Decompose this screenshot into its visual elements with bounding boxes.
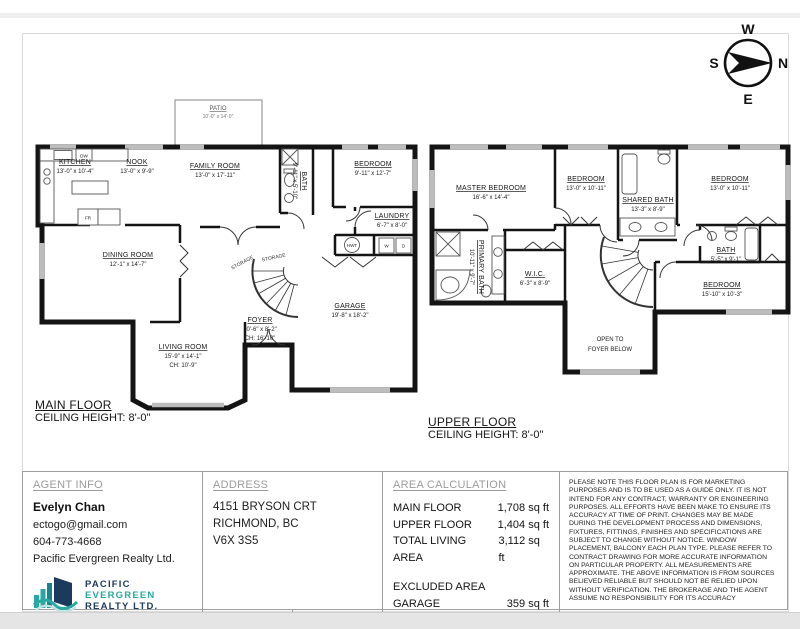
- room-dims-living: 15'-9" x 14'-1": [165, 354, 202, 360]
- floor-plan-document: W N E S: [0, 0, 800, 629]
- brokerage-logo-icon: [33, 575, 79, 615]
- room-label-storage-2: STORAGE: [261, 252, 287, 263]
- room-dims-dining: 12'-1" x 14'-7": [110, 262, 147, 268]
- upper-floor-stairs: [601, 237, 653, 307]
- room-dims-patio: 10'-0" x 14'-0": [203, 114, 234, 120]
- area-row-garage: GARAGE 359 sq ft: [393, 596, 549, 613]
- room-label-primary-bath: PRIMARY BATH: [477, 240, 484, 294]
- room-label-garage: GARAGE: [334, 303, 365, 310]
- page-bottom-edge: [0, 612, 800, 629]
- room-dims-bedroom-c: 15'-10" x 10'-3": [702, 292, 742, 298]
- main-floor-title-block: MAIN FLOOR CEILING HEIGHT: 8'-0": [35, 399, 150, 425]
- address-line-1: 4151 BRYSON CRT: [213, 501, 372, 513]
- upper-floor-ceiling: CEILING HEIGHT: 8'-0": [428, 429, 543, 442]
- agent-phone: 604-773-4668: [33, 536, 192, 548]
- room-label-patio: PATIO: [209, 106, 226, 112]
- room-label-bath: BATH: [300, 172, 307, 191]
- room-dims-shared-bath: 13'-3" x 8'-9": [631, 207, 665, 213]
- area-row-excluded: EXCLUDED AREA: [393, 579, 549, 596]
- room-dims-bedroom: 9'-11" x 12'-7": [355, 171, 391, 177]
- open-to-foyer-line2: FOYER BELOW: [588, 347, 632, 353]
- area-row-upper-floor: UPPER FLOOR 1,404 sq ft: [393, 517, 549, 534]
- address-header: ADDRESS: [213, 479, 372, 491]
- area-label: UPPER FLOOR: [393, 517, 472, 534]
- compass-east: E: [743, 91, 752, 107]
- disclaimer-section: PLEASE NOTE THIS FLOOR PLAN IS FOR MARKE…: [560, 472, 787, 629]
- room-label-bedroom-a: BEDROOM: [567, 176, 605, 183]
- agent-email: ectogo@gmail.com: [33, 519, 192, 531]
- fixture-label-dishwasher: DW: [80, 154, 88, 159]
- room-dims-bath: 9'-11" x 5'-10": [291, 163, 297, 199]
- room-label-master: MASTER BEDROOM: [456, 185, 526, 192]
- room-dims-wic: 6'-3" x 8'-9": [520, 281, 550, 287]
- area-value: 3,112 sq ft: [498, 533, 549, 566]
- address-line-3: V6X 3S5: [213, 535, 372, 547]
- compass-north: N: [778, 55, 788, 71]
- area-value: 1,708 sq ft: [498, 500, 549, 517]
- room-label-bedroom-c: BEDROOM: [703, 282, 741, 289]
- room-label-bath-upper: BATH: [717, 247, 736, 254]
- area-label: MAIN FLOOR: [393, 500, 461, 517]
- fixture-label-hot-water-tank: HWT: [347, 243, 358, 248]
- fixture-label-fridge: FR: [85, 216, 92, 221]
- room-dims-garage: 19'-8" x 18'-2": [332, 313, 369, 319]
- fixture-label-washer: W: [384, 244, 389, 249]
- area-label: GARAGE: [393, 596, 440, 613]
- room-dims-bedroom-b: 13'-0" x 10'-11": [710, 186, 750, 192]
- open-to-foyer-line1: OPEN TO: [597, 337, 624, 343]
- compass-south: S: [709, 55, 718, 71]
- room-label-nook: NOOK: [126, 159, 148, 166]
- room-label-bedroom-b: BEDROOM: [711, 176, 749, 183]
- logo-line-1: PACIFIC: [85, 579, 158, 590]
- area-row-total: TOTAL LIVING AREA 3,112 sq ft: [393, 533, 549, 566]
- area-calculation-section: AREA CALCULATION MAIN FLOOR 1,708 sq ft …: [383, 472, 560, 629]
- room-dims-master: 16'-6" x 14'-4": [473, 195, 510, 201]
- room-dims-foyer: 10'-6" x 8'-2": [243, 327, 277, 333]
- room-dims-kitchen: 13'-0" x 10'-4": [57, 169, 94, 175]
- fixture-label-dryer: D: [402, 244, 406, 249]
- room-dims-laundry: 6'-7" x 8'-0": [377, 223, 407, 229]
- area-value: 359 sq ft: [507, 596, 549, 613]
- disclaimer-text: PLEASE NOTE THIS FLOOR PLAN IS FOR MARKE…: [560, 472, 787, 610]
- logo-line-3: REALTY LTD.: [85, 601, 158, 612]
- agent-company: Pacific Evergreen Realty Ltd.: [33, 553, 192, 565]
- brokerage-logo: PACIFIC EVERGREEN REALTY LTD.: [33, 575, 192, 615]
- compass-west: W: [741, 21, 755, 37]
- agent-info-header: AGENT INFO: [33, 479, 192, 491]
- info-table: AGENT INFO Evelyn Chan ectogo@gmail.com …: [22, 471, 788, 610]
- page-top-edge: [0, 13, 800, 18]
- address-section: ADDRESS 4151 BRYSON CRT RICHMOND, BC V6X…: [203, 472, 383, 629]
- room-dims-family: 13'-0" x 17'-11": [195, 173, 235, 179]
- compass-rose: W N E S: [702, 16, 794, 108]
- main-floor-ceiling: CEILING HEIGHT: 8'-0": [35, 412, 150, 425]
- room-label-dining: DINING ROOM: [103, 252, 153, 259]
- room-ch-living: CH: 10'-9": [169, 363, 196, 369]
- area-calculation-header: AREA CALCULATION: [393, 479, 549, 491]
- area-label: TOTAL LIVING AREA: [393, 533, 498, 566]
- area-label: EXCLUDED AREA: [393, 579, 485, 596]
- room-label-shared-bath: SHARED BATH: [622, 197, 673, 204]
- room-dims-bedroom-a: 13'-0" x 10'-11": [566, 186, 606, 192]
- room-label-kitchen: KITCHEN: [59, 159, 91, 166]
- room-label-family: FAMILY ROOM: [190, 163, 240, 170]
- address-line-2: RICHMOND, BC: [213, 518, 372, 530]
- room-label-laundry: LAUNDRY: [375, 213, 410, 220]
- room-dims-bath-upper: 5'-5" x 9'-1": [711, 257, 741, 263]
- main-floor-plan: PATIO 10'-0" x 14'-0" KITCHEN 13'-0" x 1…: [30, 93, 425, 415]
- main-floor-stairs: [252, 259, 298, 317]
- room-label-bedroom: BEDROOM: [354, 161, 392, 168]
- logo-line-2: EVERGREEN: [85, 590, 158, 601]
- room-label-living: LIVING ROOM: [159, 344, 208, 351]
- room-label-foyer: FOYER: [247, 317, 272, 324]
- room-label-wic: W.I.C.: [525, 271, 545, 278]
- agent-info-section: AGENT INFO Evelyn Chan ectogo@gmail.com …: [23, 472, 203, 629]
- agent-name: Evelyn Chan: [33, 500, 192, 514]
- brokerage-logo-text: PACIFIC EVERGREEN REALTY LTD.: [85, 579, 158, 612]
- area-value: 1,404 sq ft: [498, 517, 549, 534]
- room-ch-foyer: CH: 16'-10": [245, 336, 276, 342]
- main-floor-title: MAIN FLOOR: [35, 399, 150, 412]
- upper-floor-title: UPPER FLOOR: [428, 416, 543, 429]
- room-dims-nook: 13'-0" x 9'-9": [120, 169, 154, 175]
- room-dims-primary-bath: 10'-11" x 9'-7": [468, 249, 474, 285]
- upper-floor-title-block: UPPER FLOOR CEILING HEIGHT: 8'-0": [428, 416, 543, 442]
- upper-floor-plan: MASTER BEDROOM 16'-6" x 14'-4" BEDROOM 1…: [428, 140, 793, 385]
- area-row-main-floor: MAIN FLOOR 1,708 sq ft: [393, 500, 549, 517]
